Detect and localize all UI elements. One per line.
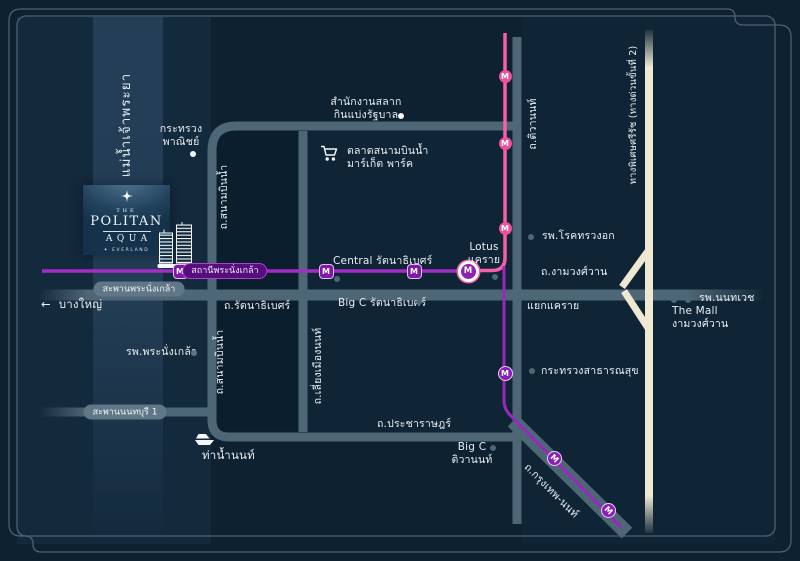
logo-divider bbox=[103, 231, 151, 232]
mrt-station-marker: M bbox=[499, 137, 512, 150]
cart-icon bbox=[320, 145, 340, 166]
poi-dot-central bbox=[334, 276, 340, 282]
direction-bang-yai: ← บางใหญ่ bbox=[41, 298, 102, 311]
road-label-liang-mueang-non: ถ.เลี่ยงเมืองนนท์ bbox=[312, 328, 325, 405]
logo-name: POLITAN bbox=[90, 214, 162, 229]
road-label-sanambinnam-south: ถ.สนามบินน้ำ bbox=[214, 330, 227, 395]
star-icon bbox=[120, 188, 134, 207]
poi-dot-public-health-ministry bbox=[529, 368, 535, 374]
poi-dot-chest-hospital bbox=[528, 234, 534, 240]
poi-dot-big-c-tiwanon bbox=[490, 445, 496, 451]
road-label-pracharat: ถ.ประชาราษฎร์ bbox=[377, 418, 451, 431]
place-label-the-mall: The Mall งามวงศ์วาน bbox=[672, 305, 728, 330]
mrt-station-marker: M bbox=[498, 366, 513, 381]
river-label: แม่น้ำเจ้าพระยา bbox=[120, 73, 133, 177]
place-label-lotus-khaerai: Lotus แคราย bbox=[468, 241, 500, 266]
poi-dot-ministry-commerce bbox=[190, 151, 196, 157]
place-label-chest-hospital: รพ.โรคทรวงอก bbox=[542, 230, 615, 243]
expressway-label: ทางพิเศษศรีรัช (ทางด่วนขั้นที่ 2) bbox=[628, 46, 641, 185]
place-label-ministry-commerce: กระทรวง พาณิชย์ bbox=[160, 123, 203, 148]
logo-by: ✦ EVERLAND bbox=[104, 248, 150, 253]
place-label-lottery-office: สำนักงานสลาก กินแบ่งรัฐบาล bbox=[330, 96, 401, 121]
politan-aqua-location-map: แม่น้ำเจ้าพระยา กระทรวง พาณิชย์ สำนักงาน… bbox=[0, 0, 800, 561]
place-label-sanambinnam-market: ตลาดสนามบินน้ำ มาร์เก็ต พาร์ค bbox=[347, 145, 429, 170]
road-label-rattanathibet: ถ.รัตนาธิเบศร์ bbox=[224, 300, 290, 313]
place-label-nonthavej-hospital: รพ.นนทเวช bbox=[699, 292, 755, 305]
place-label-big-c-tiwanon: Big C ติวานนท์ bbox=[451, 441, 492, 466]
station-pill-phra-nangklao: สถานีพระนั่งเกล้า bbox=[182, 263, 267, 279]
bridge-pill-phra-nangklao: สะพานพระนั่งเกล้า bbox=[94, 282, 185, 297]
poi-dot-the-mall bbox=[671, 297, 677, 303]
mrt-station-marker: M bbox=[499, 70, 512, 83]
poi-dot-nonthavej bbox=[685, 297, 691, 303]
poi-dot-lottery-office bbox=[398, 113, 404, 119]
place-label-nonthaburi-pier: ท่าน้ำนนท์ bbox=[202, 449, 255, 462]
road-label-sanambinnam-north: ถ.สนามบินน้ำ bbox=[218, 165, 231, 230]
mrt-station-marker: M bbox=[499, 222, 512, 235]
road-label-tiwanon: ถ.ติวานนท์ bbox=[527, 98, 540, 149]
place-label-central-rattanathibet: Central รัตนาธิเบศร์ bbox=[333, 255, 432, 268]
poi-dot-lotus bbox=[492, 274, 498, 280]
poi-dot-big-c-rattanathibet bbox=[416, 299, 422, 305]
mrt-station-marker: M bbox=[319, 264, 334, 279]
place-label-public-health-ministry: กระทรวงสาธารณสุข bbox=[541, 365, 639, 378]
place-label-phra-nangklao-hospital: รพ.พระนั่งเกล้า bbox=[126, 346, 197, 359]
place-label-big-c-rattanathibet: Big C รัตนาธิเบศร์ bbox=[338, 297, 426, 310]
place-label-khaerai-intersection: แยกแคราย bbox=[527, 300, 579, 313]
left-arrow-icon: ← bbox=[41, 297, 51, 311]
road-label-ngamwongwan: ถ.งามวงศ์วาน bbox=[541, 266, 608, 279]
poi-dot-phra-nangklao-hospital bbox=[191, 350, 197, 356]
bridge-pill-nonthaburi-1: สะพานนนทบุรี 1 bbox=[84, 405, 167, 420]
logo-aqua: AQUA bbox=[101, 234, 151, 244]
